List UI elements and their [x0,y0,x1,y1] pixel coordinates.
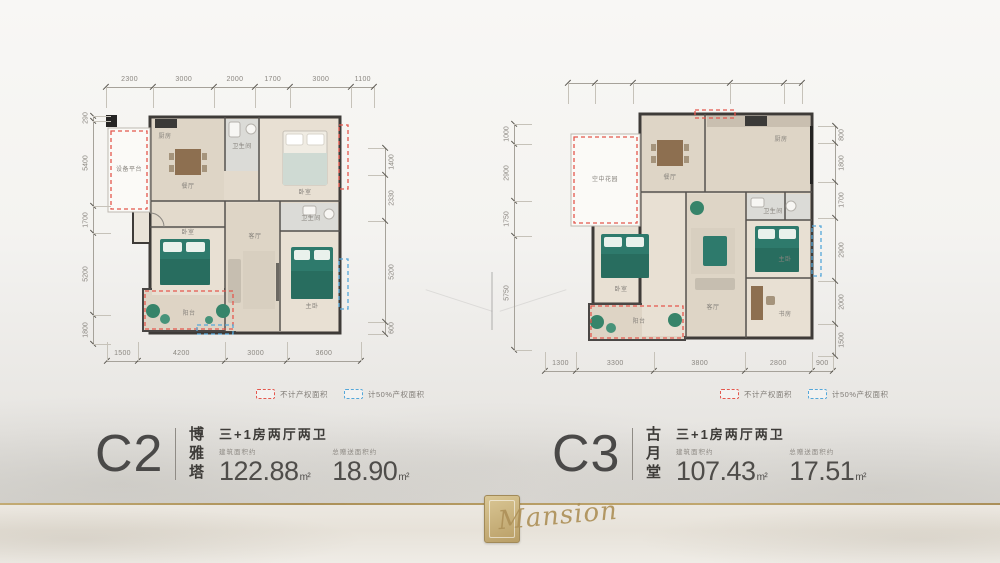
area-unit: m² [300,472,311,483]
dimension-value: 1300 [552,360,569,367]
dimension-value: 1800 [839,148,846,178]
extension-line [138,342,139,361]
dimension-value: 3800 [691,360,708,367]
legend-item: 计50%产权面积 [344,389,425,400]
dimension-value: 5750 [504,278,511,308]
poster: 设备平台厨房餐厅卫生间卧室卧室客厅卫生间主卧阳台 230030002000170… [0,0,1000,563]
extension-line [812,352,813,371]
area-figure: 总赠送面积约 18.90m² [332,446,409,485]
area-label: 总赠送面积约 [332,446,409,456]
unit-code: C3 [552,428,620,480]
extension-line [745,352,746,371]
extension-line [368,175,385,176]
dimension-value: 2900 [839,235,846,265]
extension-line [368,334,385,335]
area-label: 总赠送面积约 [789,446,866,456]
legend-label: 不计产权面积 [744,389,792,400]
extension-line [818,218,835,219]
dim-rail-bottom-c3: 1300330038002800900 [545,362,833,376]
bridge-tower-graphic [491,272,493,330]
dimension-value: 290 [83,103,90,133]
extension-line [818,182,835,183]
dimension-value: 1800 [83,315,90,345]
dimension-value: 3000 [312,76,329,83]
dimension-value: 1700 [83,205,90,235]
extension-line [818,281,835,282]
extension-line [514,236,532,237]
dimension-value: 3000 [175,76,192,83]
area-unit: m² [855,472,866,483]
room-label: 阳台 [182,311,195,317]
extension-line [93,344,111,345]
legend-label: 计50%产权面积 [832,389,889,400]
extension-line [368,221,385,222]
dim-rail-bottom-c2: 1500420030003600 [107,352,361,366]
unit-name: 博雅塔 [186,426,203,483]
dimension-value: 800 [839,120,846,150]
dimension-value: 1500 [839,325,846,355]
extension-line [368,148,385,149]
legend-item: 不计产权面积 [720,389,792,400]
dim-rail-right-c3: 80018001700290020001500 [831,126,845,356]
area-value: 107.43 [676,456,756,486]
extension-line [106,87,107,108]
legend-item: 计50%产权面积 [808,389,889,400]
extension-line [93,116,111,117]
floorplan-c3: 空中花园餐厅厨房卫生间卧室客厅主卧书房阳台 [545,108,830,353]
area-figure: 总赠送面积约 17.51m² [789,446,866,485]
legend-c2: 不计产权面积计50%产权面积 [256,386,441,404]
room-label: 卫生间 [763,209,783,215]
area-label: 建筑面积约 [219,446,310,456]
area-value: 122.88 [219,456,299,486]
room-label: 卫生间 [301,216,321,222]
extension-line [818,143,835,144]
dimension-value: 1100 [355,76,371,83]
area-value: 18.90 [332,456,397,486]
area-figure: 建筑面积约 107.43m² [676,446,767,485]
extension-line [730,83,731,104]
room-label: 主卧 [305,304,318,310]
extension-line [368,322,385,323]
extension-line [568,83,569,104]
extension-line [255,87,256,108]
dimension-value: 600 [389,313,396,343]
extension-line [514,350,532,351]
room-label: 空中花园 [592,177,618,183]
dimension-value: 1750 [504,204,511,234]
layout-type: 三+1房两厅两卫 [676,424,866,443]
divider [632,428,633,480]
dimension-value: 1000 [504,119,511,149]
room-label: 厨房 [774,137,787,143]
extension-line [818,356,835,357]
unit-name: 古月堂 [643,426,660,483]
extension-line [576,352,577,371]
extension-line [361,342,362,361]
room-label: 餐厅 [663,175,676,181]
extension-line [802,83,803,104]
extension-line [351,87,352,108]
layout-type: 三+1房两厅两卫 [219,424,409,443]
dimension-value: 1700 [839,185,846,215]
dimension-value: 2330 [389,183,396,213]
extension-line [153,87,154,108]
extension-line [818,126,835,127]
extension-line [93,233,111,234]
extension-line [93,315,111,316]
extension-line [514,201,532,202]
legend-swatch [808,389,827,399]
room-label: 卧室 [614,287,627,293]
extension-line [374,87,375,108]
extension-line [818,324,835,325]
legend-swatch [256,389,275,399]
area-label: 建筑面积约 [676,446,767,456]
dimension-value: 4200 [173,350,190,357]
unit-info-c3: C3 古月堂 三+1房两厅两卫 建筑面积约 107.43m² 总赠送面积约 17… [552,425,866,483]
dimension-value: 3300 [607,360,624,367]
dimension-value: 2000 [226,76,243,83]
unit-info-c2: C2 博雅塔 三+1房两厅两卫 建筑面积约 122.88m² 总赠送面积约 18… [95,425,409,483]
extension-line [633,83,634,104]
dimension-line [568,83,802,84]
dimension-line [835,126,836,356]
extension-line [93,121,111,122]
room-label: 卫生间 [232,144,252,150]
extension-line [595,83,596,104]
dimension-value: 3600 [315,350,332,357]
legend-c3: 不计产权面积计50%产权面积 [720,386,905,404]
dim-rail-right-c2: 140023305200600 [381,148,395,334]
room-label: 客厅 [706,305,719,311]
area-value: 17.51 [789,456,854,486]
dimension-line [545,371,833,372]
legend-label: 计50%产权面积 [368,389,425,400]
legend-item: 不计产权面积 [256,389,328,400]
extension-line [214,87,215,108]
dimension-value: 5200 [389,257,396,287]
legend-swatch [720,389,739,399]
area-unit: m² [757,472,768,483]
dimension-line [93,116,94,344]
dimension-value: 3000 [247,350,264,357]
dimension-value: 1500 [114,350,131,357]
legend-swatch [344,389,363,399]
area-unit: m² [398,472,409,483]
floorplan-c2: 设备平台厨房餐厅卫生间卧室卧室客厅卫生间主卧阳台 [105,113,375,340]
dimension-value: 5200 [83,259,90,289]
extension-line [287,342,288,361]
area-figure: 建筑面积约 122.88m² [219,446,310,485]
extension-line [93,206,111,207]
room-label: 主卧 [778,257,791,263]
room-label: 客厅 [248,234,261,240]
dim-rail-left-c2: 2905400170052001800 [84,116,98,344]
dim-rail-top-c3: 800115029001600550 [568,74,802,88]
room-label: 书房 [778,312,791,318]
dimension-line [107,361,361,362]
dimension-value: 1400 [389,147,396,177]
extension-line [514,124,532,125]
room-label: 阳台 [632,319,645,325]
dim-rail-top-c2: 230030002000170030001100 [106,78,374,92]
extension-line [784,83,785,104]
extension-line [225,342,226,361]
dimension-value: 2300 [121,76,138,83]
room-label: 厨房 [158,134,171,140]
dimension-line [106,87,374,88]
extension-line [514,144,532,145]
dimension-value: 2000 [839,287,846,317]
dimension-value: 5400 [83,148,90,178]
room-label: 设备平台 [116,167,142,173]
legend-label: 不计产权面积 [280,389,328,400]
dim-rail-left-c3: 1000290017505750 [505,124,519,350]
room-label: 餐厅 [181,184,194,190]
dimension-value: 900 [816,360,829,367]
room-label: 卧室 [298,190,311,196]
room-label: 卧室 [181,230,194,236]
dimension-value: 2800 [770,360,787,367]
extension-line [654,352,655,371]
extension-line [545,352,546,371]
extension-line [290,87,291,108]
unit-code: C2 [95,428,163,480]
divider [175,428,176,480]
dimension-value: 2900 [504,158,511,188]
dimension-value: 1700 [264,76,281,83]
